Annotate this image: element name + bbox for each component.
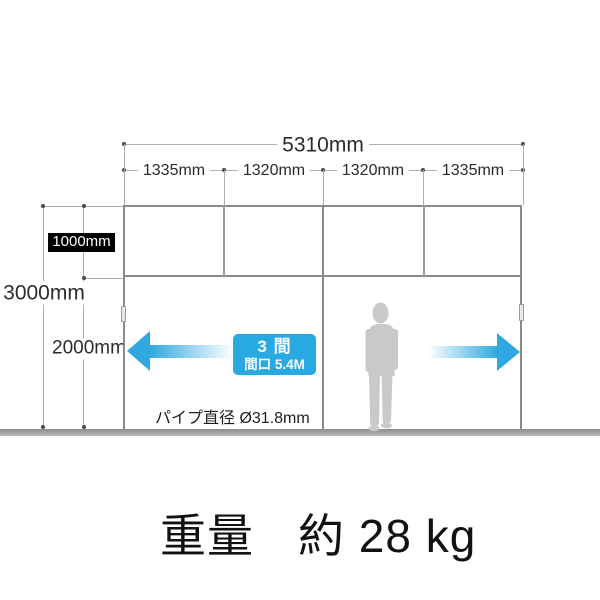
dimension-label-segment-2: 1320mm [238, 162, 310, 180]
dimension-endpoint-dot [41, 204, 45, 208]
dimension-label-segment-4: 1335mm [437, 162, 509, 180]
pipe-diameter-note: パイプ直径 Ø31.8mm [155, 404, 310, 428]
weight-label: 重量 [160, 500, 254, 566]
frame-center-post [322, 205, 324, 429]
dimension-endpoint-dot [82, 276, 86, 280]
dimension-label-upper-height: 1000mm [48, 233, 115, 252]
dimension-endpoint-dot [82, 204, 86, 208]
left-arrow-shaft [149, 345, 233, 358]
extension-line [124, 144, 125, 205]
dimension-label-total-width: 5310mm [277, 133, 369, 156]
person-silhouette [355, 302, 405, 433]
right-arrow-icon [497, 333, 520, 371]
dimension-line-total-height [43, 206, 44, 428]
dimension-label-total-height: 3000mm [0, 281, 90, 304]
weight-value: 約 28 kg [298, 500, 476, 566]
dimension-label-lower-height: 2000mm [47, 339, 131, 360]
frame-upper-post-right [423, 205, 425, 277]
ground-line [0, 429, 600, 436]
dimension-label-segment-3: 1320mm [337, 162, 409, 180]
right-arrow-shaft [428, 346, 498, 358]
extension-line [423, 170, 424, 205]
left-arrow-icon [127, 331, 150, 371]
diagram-canvas: 5310mm 1335mm 1320mm 1320mm 1335mm 1000m… [0, 0, 600, 600]
weight-caption: 重量 約 28 kg [160, 500, 476, 566]
span-badge: 3 間 間口 5.4M [233, 334, 316, 375]
pipe-joint-left [121, 306, 126, 322]
span-badge-opening-width: 間口 5.4M [244, 357, 305, 373]
span-badge-ken-count: 3 間 [257, 337, 291, 357]
pipe-joint-right [519, 304, 524, 321]
dimension-label-segment-1: 1335mm [138, 162, 210, 180]
extension-line [224, 170, 225, 205]
extension-line [323, 170, 324, 205]
extension-line [523, 144, 524, 205]
extension-line [83, 278, 124, 279]
frame-upper-post-left [223, 205, 225, 277]
